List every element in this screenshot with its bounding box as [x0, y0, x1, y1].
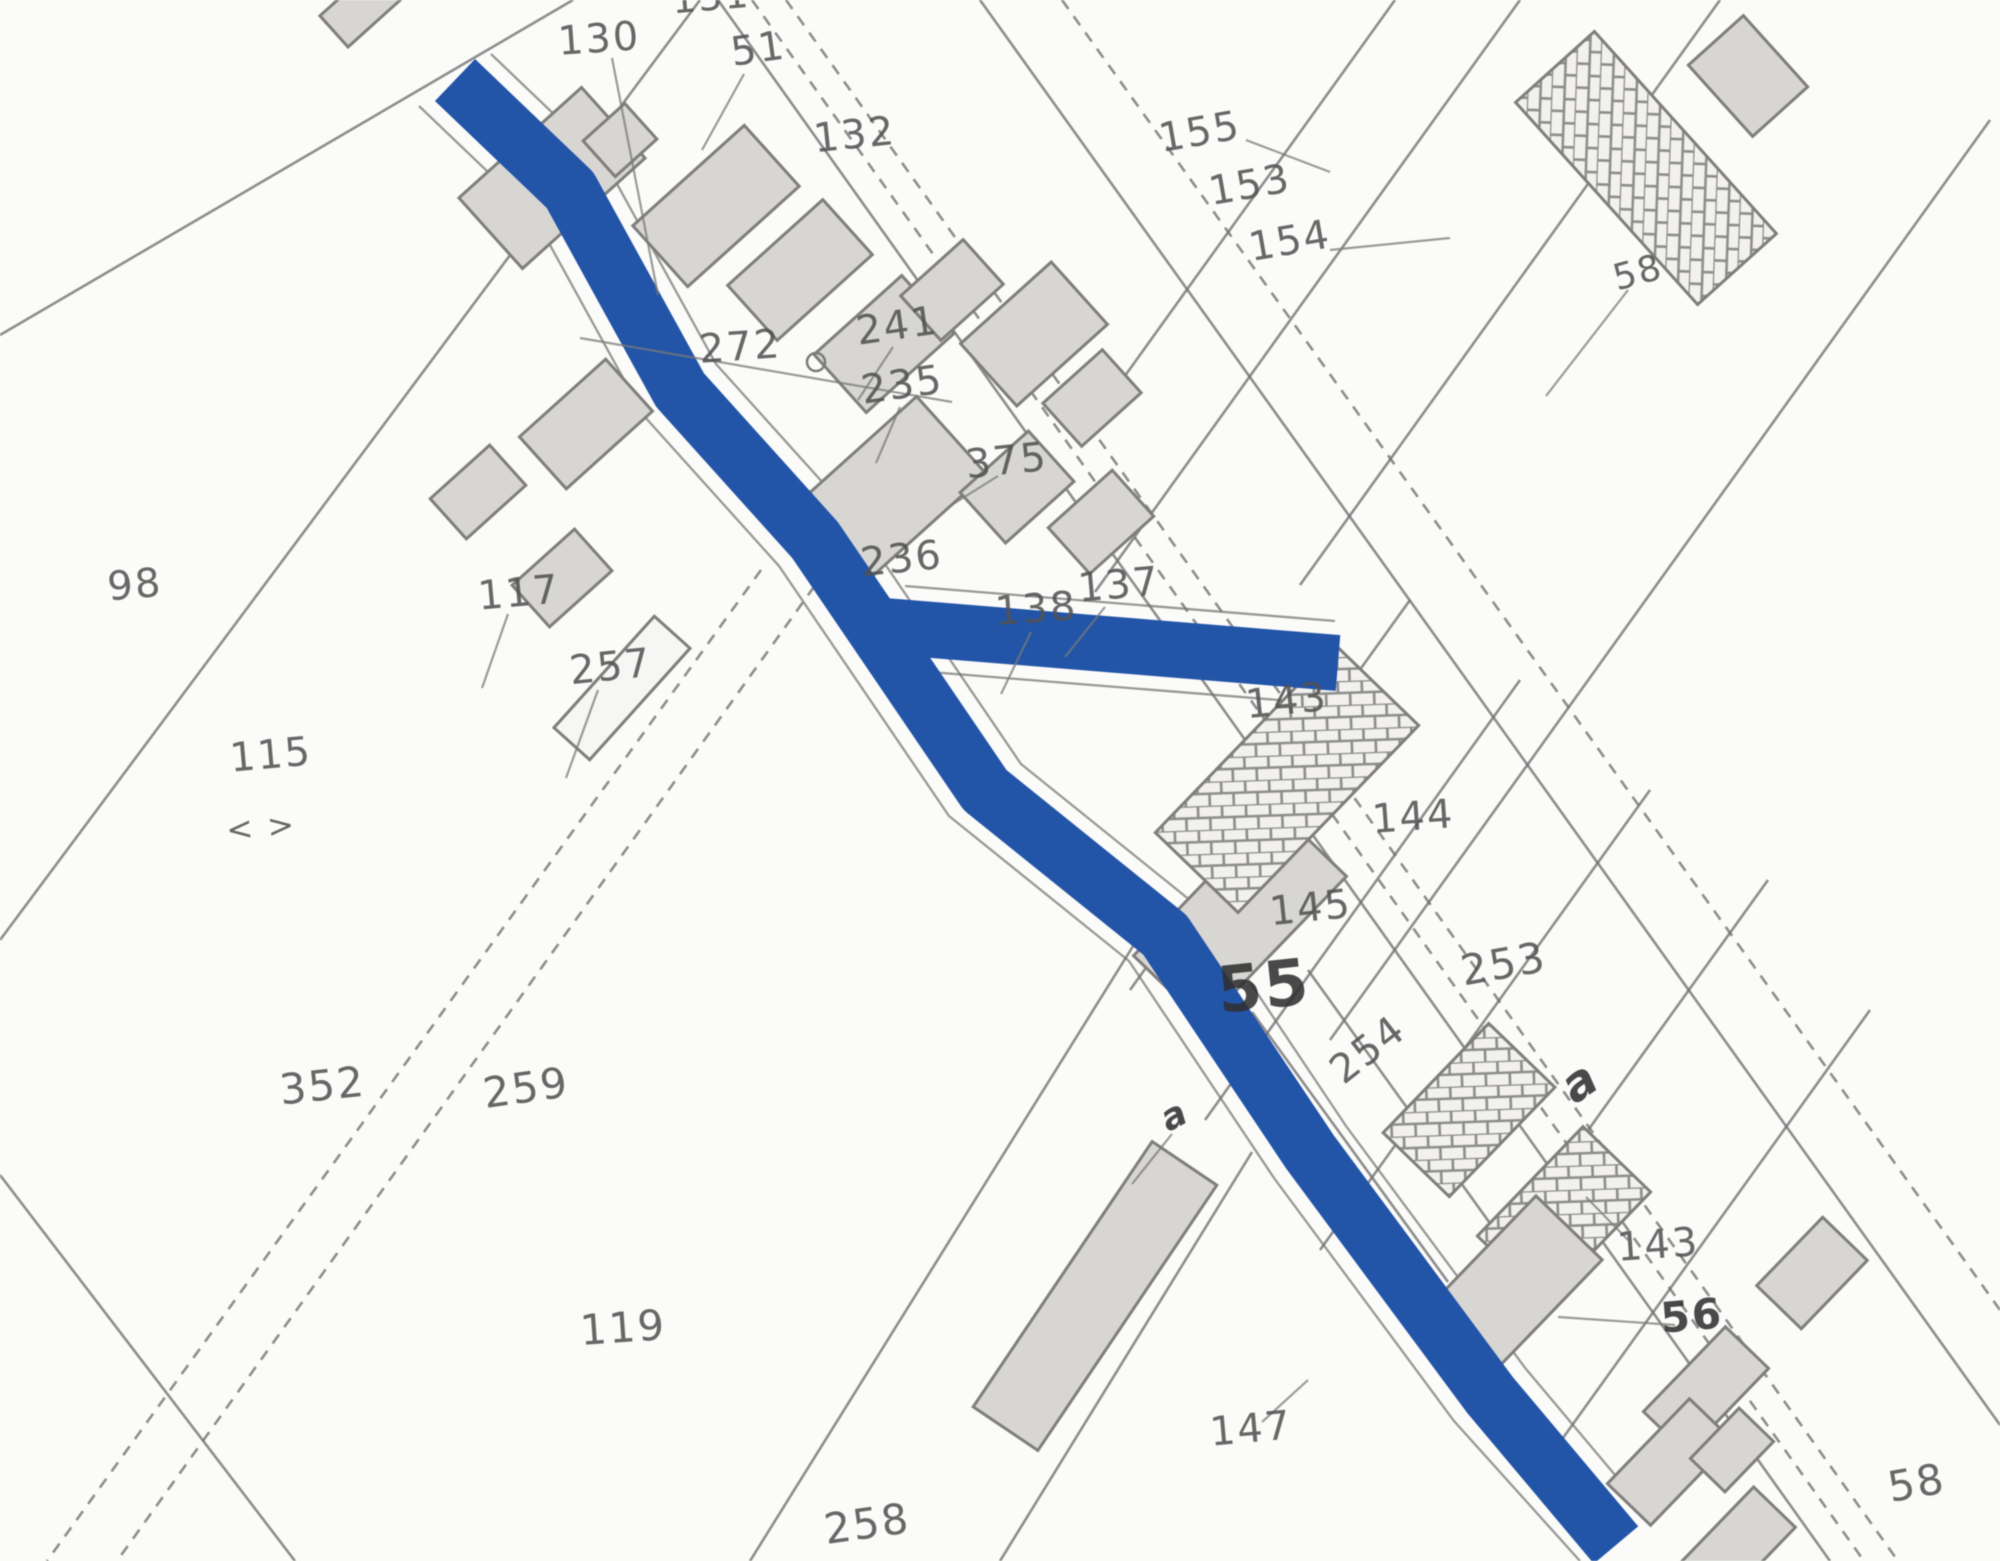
parcel-label-272: 272 [697, 321, 782, 373]
parcel-label-143: 143 [1615, 1219, 1700, 1271]
parcel-label-259: 259 [480, 1057, 572, 1118]
parcel-label-98: 98 [106, 560, 165, 611]
parcel-label-257: 257 [567, 640, 654, 694]
parcel-label-130: 130 [556, 13, 641, 65]
parcel-label-143: 143 [1243, 674, 1330, 728]
highlighted-route-side-arm [872, 625, 1338, 663]
building [320, 0, 400, 47]
boundary-line [1095, 0, 1520, 592]
parcel-label-253: 253 [1457, 932, 1550, 995]
parcel-label-<>: < > [225, 805, 298, 849]
parcel-label-144: 144 [1370, 791, 1455, 843]
parcel-label-236: 236 [858, 532, 945, 586]
parcel-label-137: 137 [1076, 559, 1162, 612]
parcel-label-58: 58 [1884, 1454, 1949, 1512]
parcel-label-155: 155 [1155, 102, 1244, 162]
map-canvas[interactable]: 1311305113215515315458272241235375236137… [0, 0, 2000, 1561]
parcel-label-115: 115 [228, 729, 314, 782]
parcel-label-58: 58 [1609, 247, 1668, 299]
building-hatched [1383, 1023, 1555, 1196]
building [519, 359, 652, 489]
parcel-label-375: 375 [963, 434, 1050, 488]
label-leader-line [482, 614, 508, 688]
building [1757, 1217, 1868, 1328]
parcel-label-153: 153 [1205, 155, 1294, 215]
parcel-label-117: 117 [476, 567, 562, 620]
parcel-label-a: a [1550, 1049, 1610, 1115]
parcel-label-138: 138 [993, 583, 1078, 635]
building [1679, 1487, 1796, 1561]
parcel-label-352: 352 [277, 1057, 368, 1115]
parcel-label-55: 55 [1214, 945, 1314, 1028]
boundary-line [117, 570, 826, 1561]
boundary-line [0, 1175, 295, 1561]
parcel-label-131: 131 [670, 0, 752, 22]
parcel-label-258: 258 [821, 1493, 913, 1554]
parcel-label-145: 145 [1267, 881, 1354, 935]
building [430, 445, 526, 539]
label-leader-line [1546, 290, 1628, 396]
boundary-line [47, 570, 761, 1561]
parcel-label-a: a [1153, 1092, 1195, 1141]
parcel-label-119: 119 [578, 1300, 667, 1355]
parcel-label-132: 132 [811, 108, 898, 162]
building [973, 1142, 1217, 1451]
map-viewport[interactable]: 1311305113215515315458272241235375236137… [0, 0, 2000, 1561]
parcel-label-254: 254 [1321, 1006, 1414, 1093]
parcel-label-56: 56 [1658, 1288, 1724, 1342]
boundary-line [1300, 0, 1720, 585]
parcel-label-51: 51 [728, 23, 789, 76]
building [1688, 16, 1807, 137]
parcel-label-154: 154 [1245, 211, 1334, 271]
parcel-label-147: 147 [1208, 1403, 1294, 1456]
